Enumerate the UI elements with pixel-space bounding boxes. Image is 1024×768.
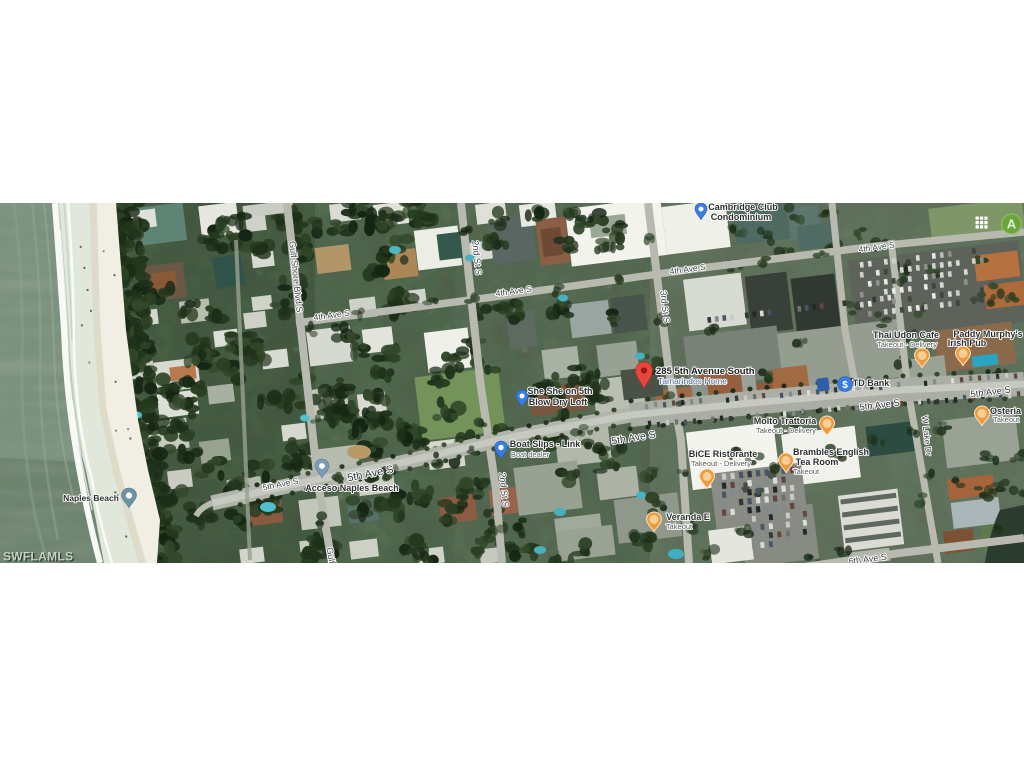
svg-text:BiCE Ristorante: BiCE Ristorante — [689, 449, 758, 459]
svg-text:Takeout - Delivery: Takeout - Delivery — [691, 459, 751, 468]
svg-text:She She on 5th: She She on 5th — [527, 386, 592, 396]
svg-text:SWFLAMLS: SWFLAMLS — [3, 550, 73, 564]
svg-text:Cambridge Club: Cambridge Club — [708, 203, 778, 212]
svg-text:Brambles English: Brambles English — [793, 447, 869, 457]
svg-text:Molto Trattoria: Molto Trattoria — [754, 416, 817, 426]
svg-text:Boat Slips - Link: Boat Slips - Link — [510, 439, 582, 449]
svg-text:Takeout: Takeout — [666, 522, 693, 531]
svg-text:$: $ — [842, 380, 848, 391]
svg-text:Takeout: Takeout — [993, 415, 1020, 424]
svg-text:Boat dealer: Boat dealer — [511, 450, 550, 459]
svg-text:Tamarindos Home: Tamarindos Home — [658, 376, 727, 386]
svg-text:Condominium: Condominium — [711, 212, 772, 222]
svg-text:Takeout - Delivery: Takeout - Delivery — [877, 340, 937, 349]
svg-text:Naples Beach: Naples Beach — [63, 493, 119, 503]
svg-text:Takeout: Takeout — [793, 467, 820, 476]
svg-text:Acceso Naples Beach: Acceso Naples Beach — [305, 483, 399, 493]
svg-text:Veranda E: Veranda E — [666, 512, 710, 522]
svg-text:A: A — [1007, 217, 1017, 232]
svg-text:Blow Dry Loft: Blow Dry Loft — [529, 397, 588, 407]
svg-text:Takeout - Delivery: Takeout - Delivery — [756, 426, 816, 435]
svg-text:Thai Udon Cafe: Thai Udon Cafe — [873, 330, 939, 340]
svg-text:Tea Room: Tea Room — [796, 457, 839, 467]
svg-text:Irish Pub: Irish Pub — [948, 338, 987, 348]
svg-text:TD Bank: TD Bank — [853, 378, 891, 388]
